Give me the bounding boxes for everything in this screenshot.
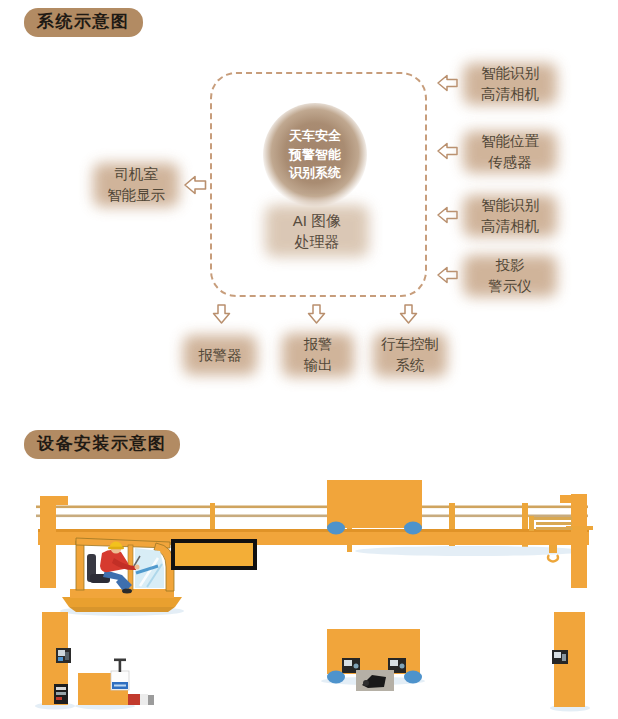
trolley-underside-unit <box>321 629 425 691</box>
position-sensor-unit <box>111 659 129 691</box>
installation-diagram-title: 设备安装示意图 <box>24 430 180 459</box>
arrow-left-icon <box>183 174 208 196</box>
arrow-left-icon <box>436 73 459 93</box>
ground-right-column <box>550 612 590 712</box>
ground-left-column <box>35 612 75 710</box>
ai-processor-label: AI 图像 处理器 <box>262 202 372 260</box>
crane-rails <box>36 506 588 518</box>
projector-warning-device <box>128 694 154 705</box>
cabin-display-screen <box>173 541 255 568</box>
arrow-down-icon <box>398 303 419 325</box>
camera-device <box>56 648 71 663</box>
alarm-label: 报警器 <box>180 332 260 378</box>
projection-warning-label: 投影 警示仪 <box>460 252 560 300</box>
trolley-wheel <box>404 522 422 535</box>
crane-illustration <box>28 470 600 716</box>
ground-equipment-box <box>75 659 154 710</box>
unit-wheel <box>327 671 345 684</box>
alarm-output-label: 报警 输出 <box>279 330 357 380</box>
driver-display-label: 司机室 智能显示 <box>90 160 182 210</box>
hub-circle: 天车安全 预警智能 识别系统 <box>263 103 367 207</box>
driver-cabin <box>60 538 184 616</box>
arrow-down-icon <box>306 303 327 325</box>
system-diagram-title: 系统示意图 <box>24 8 143 37</box>
camera-label-bottom: 智能识别 高清相机 <box>460 192 560 240</box>
camera-device <box>552 650 568 664</box>
camera-label-top: 智能识别 高清相机 <box>460 60 560 108</box>
position-sensor-label: 智能位置 传感器 <box>460 128 560 176</box>
camera-photo-inset <box>356 670 394 691</box>
arrow-left-icon <box>436 205 459 225</box>
arrow-left-icon <box>436 141 459 161</box>
crane-trolley <box>327 480 422 535</box>
crane-control-system-label: 行车控制 系统 <box>370 330 450 380</box>
arrow-left-icon <box>436 265 459 285</box>
trolley-wheel <box>327 522 345 535</box>
sensor-device <box>54 684 68 704</box>
unit-wheel <box>404 671 422 684</box>
cabin-window <box>135 548 164 588</box>
operator-figure <box>100 542 140 594</box>
arrow-down-icon <box>211 303 232 325</box>
page: 系统示意图 天车安全 预警智能 识别系统 AI 图像 处理器 司机室 智能显示 … <box>0 0 618 719</box>
